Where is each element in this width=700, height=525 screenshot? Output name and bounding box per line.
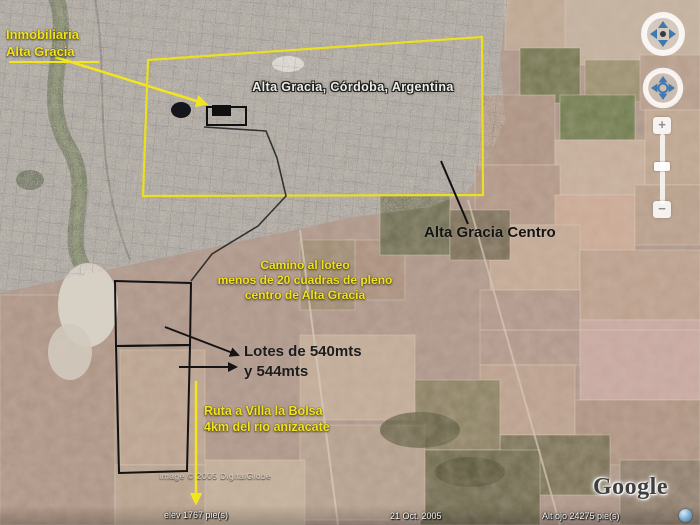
lotes-label-line2: y 544mts [244, 362, 362, 382]
lotes-label-line1: Lotes de 540mts [244, 342, 362, 362]
camino-label-line3: centro de Alta Gracia [182, 288, 428, 303]
centro-leader-line [441, 161, 468, 224]
look-center-dot[interactable] [660, 31, 666, 37]
eye-altitude-readout: Alt ojo 24275 pie(s) [542, 511, 620, 521]
imagery-date-readout: 21 Oct. 2005 [390, 511, 442, 521]
lotes-label: Lotes de 540mts y 544mts [244, 342, 362, 382]
ruta-label-line1: Ruta a Villa la Bolsa [204, 403, 330, 419]
google-earth-viewport[interactable]: Inmobiliaria Alta Gracia Alta Gracia, Có… [0, 0, 700, 525]
zoom-out-button[interactable]: − [653, 201, 671, 218]
inmobiliaria-label-line2: Alta Gracia [6, 43, 79, 60]
inmobiliaria-label: Inmobiliaria Alta Gracia [6, 26, 79, 60]
inmobiliaria-arrow [55, 57, 206, 104]
streaming-globe-icon [679, 509, 692, 522]
elevation-readout: elev 1767 pie(s) [164, 510, 228, 520]
ruta-label-line2: 4km del rio anizacate [204, 419, 330, 435]
zoom-slider-handle[interactable] [654, 162, 670, 171]
google-logo: Google [593, 474, 668, 501]
lotes-arrow-upper [165, 327, 238, 355]
camino-label-line2: menos de 20 cuadras de pleno [182, 273, 428, 288]
lot-outline-south [116, 345, 190, 473]
ruta-label: Ruta a Villa la Bolsa 4km del rio anizac… [204, 403, 330, 435]
office-placemark-icon[interactable] [171, 102, 191, 118]
city-name-label: Alta Gracia, Córdoba, Argentina [238, 80, 468, 94]
look-joystick-control[interactable] [638, 9, 688, 59]
pan-joystick-control[interactable] [640, 65, 686, 111]
camino-label: Camino al loteo menos de 20 cuadras de p… [182, 258, 428, 303]
centro-label: Alta Gracia Centro [424, 224, 556, 241]
lot-outline-north [115, 281, 191, 346]
city-outline-rectangle [143, 37, 483, 196]
zoom-in-button[interactable]: + [653, 117, 671, 134]
inmobiliaria-label-line1: Inmobiliaria [6, 26, 79, 43]
camino-label-line1: Camino al loteo [182, 258, 428, 273]
copyright-watermark: Image © 2005 DigitalGlobe [159, 471, 271, 481]
